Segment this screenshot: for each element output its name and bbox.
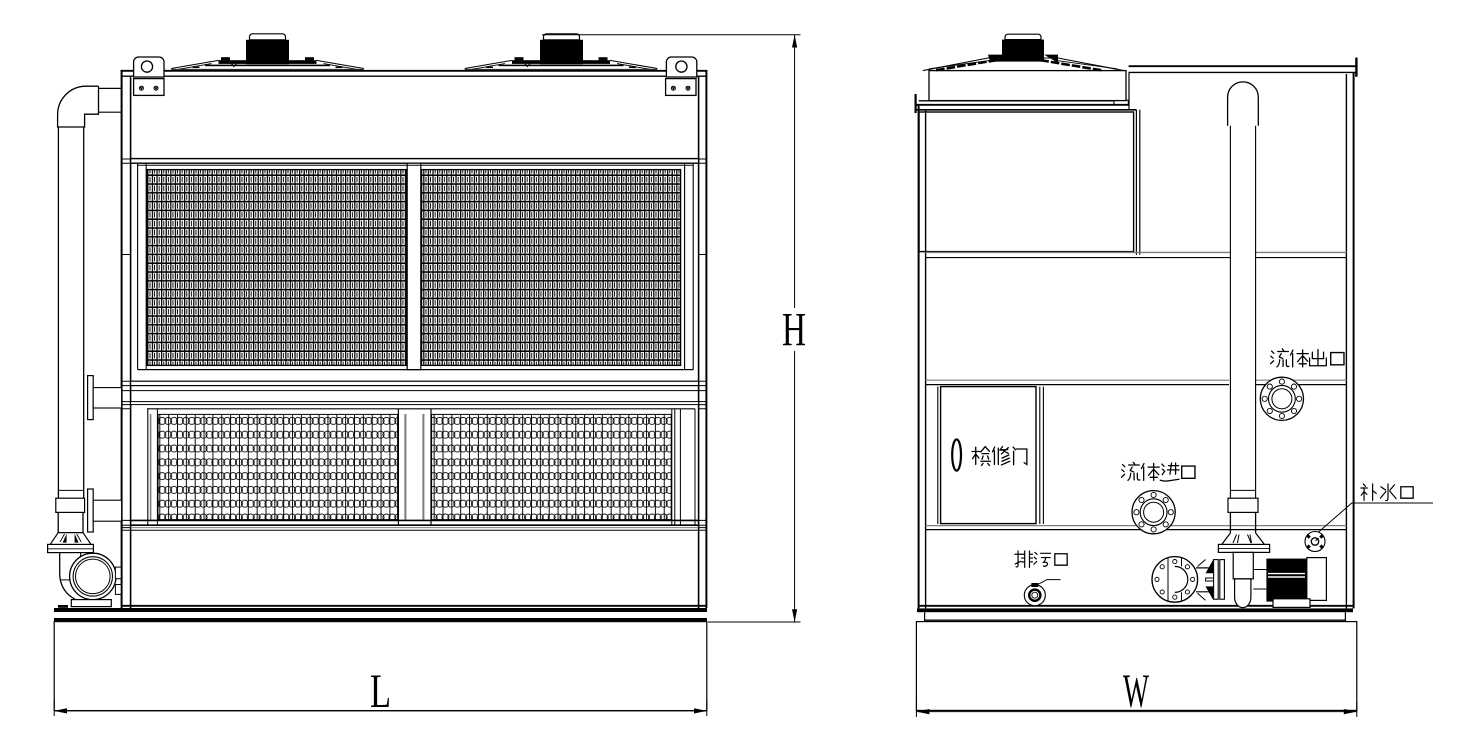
svg-text:H: H — [782, 304, 806, 357]
svg-text:W: W — [1123, 665, 1149, 718]
svg-text:L: L — [370, 665, 391, 718]
